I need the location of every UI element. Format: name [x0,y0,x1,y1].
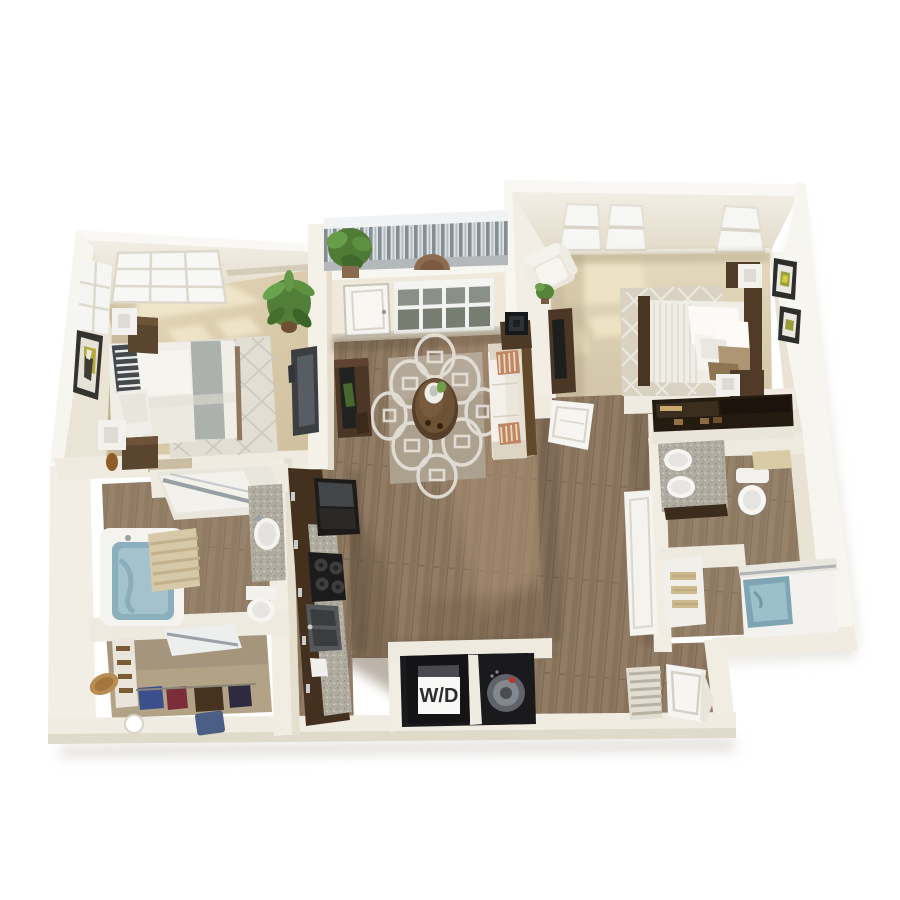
svg-text:W/D: W/D [420,685,459,707]
